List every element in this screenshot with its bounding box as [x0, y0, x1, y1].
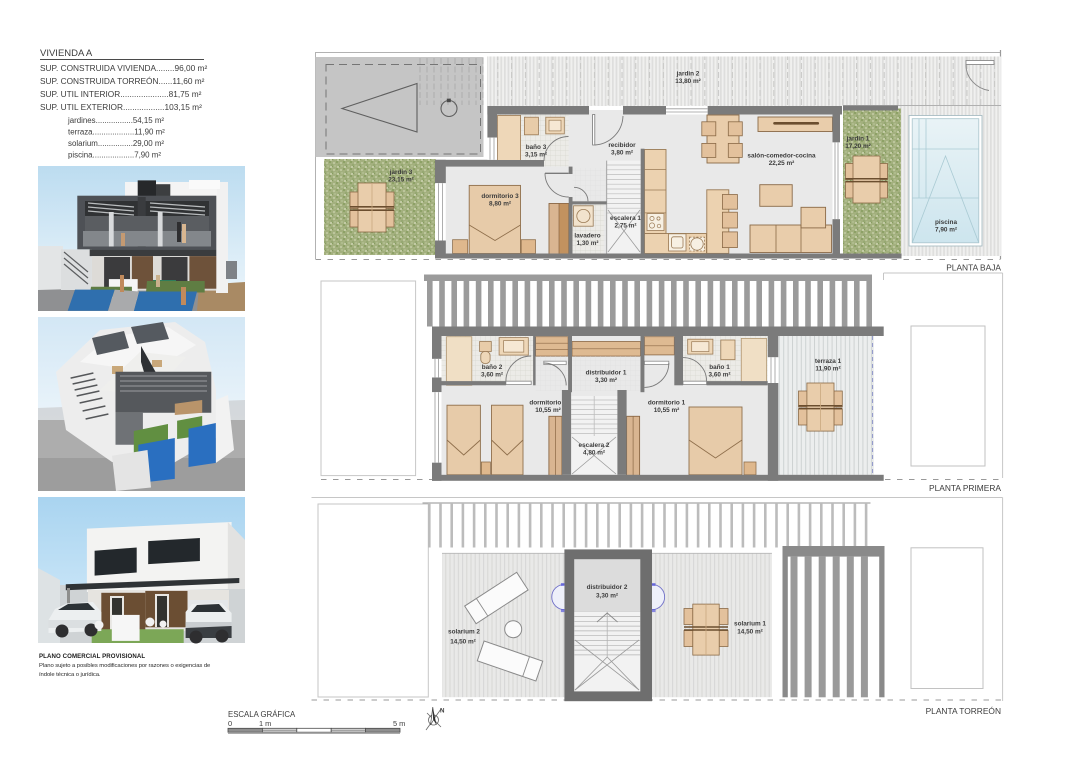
svg-text:Plano sujeto a posibles modifi: Plano sujeto a posibles modificaciones p…	[39, 663, 211, 669]
svg-text:0: 0	[228, 719, 232, 728]
svg-text:8,80 m²: 8,80 m²	[489, 201, 511, 208]
svg-text:dormitorio 2: dormitorio 2	[529, 400, 567, 407]
svg-text:2,75 m²: 2,75 m²	[614, 223, 636, 230]
svg-text:SUP. UTIL INTERIOR............: SUP. UTIL INTERIOR.....................8…	[40, 89, 202, 99]
svg-text:distribuidor 2: distribuidor 2	[587, 584, 628, 591]
svg-text:11,90 m²: 11,90 m²	[815, 366, 840, 373]
svg-text:PLANTA TORREÓN: PLANTA TORREÓN	[926, 706, 1001, 716]
svg-text:13,80 m²: 13,80 m²	[675, 78, 701, 85]
svg-text:22,25 m²: 22,25 m²	[769, 160, 795, 167]
svg-text:jardines.................54,15: jardines.................54,15 m²	[67, 116, 164, 125]
svg-text:solarium 2: solarium 2	[448, 629, 480, 636]
svg-text:escalera 2: escalera 2	[579, 442, 610, 449]
svg-text:3,30 m²: 3,30 m²	[596, 593, 618, 600]
svg-text:SUP. CONSTRUIDA VIVIENDA......: SUP. CONSTRUIDA VIVIENDA........96,00 m²	[40, 63, 207, 73]
svg-text:PLANTA BAJA: PLANTA BAJA	[946, 263, 1001, 273]
svg-text:baño 3: baño 3	[526, 144, 547, 151]
svg-text:3,60 m²: 3,60 m²	[481, 372, 503, 379]
svg-text:1 m: 1 m	[259, 719, 271, 728]
svg-text:índole técnica o jurídica.: índole técnica o jurídica.	[39, 672, 101, 678]
svg-text:3,60 m²: 3,60 m²	[708, 372, 730, 379]
svg-text:solarium 1: solarium 1	[734, 621, 766, 628]
svg-text:dormitorio 3: dormitorio 3	[481, 193, 519, 200]
svg-text:5 m: 5 m	[393, 719, 405, 728]
svg-text:recibidor: recibidor	[608, 142, 636, 149]
svg-text:dormitorio 1: dormitorio 1	[648, 400, 686, 407]
svg-text:escalera 1: escalera 1	[610, 215, 641, 222]
svg-text:jardin 1: jardin 1	[846, 136, 870, 143]
svg-text:jardin 2: jardin 2	[676, 71, 700, 78]
svg-text:4,80 m²: 4,80 m²	[583, 450, 605, 457]
svg-text:baño 2: baño 2	[482, 364, 503, 371]
svg-text:distribuidor 1: distribuidor 1	[586, 370, 627, 377]
svg-text:lavadero: lavadero	[574, 233, 600, 240]
svg-text:3,30 m²: 3,30 m²	[595, 377, 617, 384]
svg-text:N: N	[440, 708, 445, 715]
svg-text:14,50 m²: 14,50 m²	[737, 629, 763, 636]
svg-text:PLANO COMERCIAL PROVISIONAL: PLANO COMERCIAL PROVISIONAL	[39, 653, 145, 660]
svg-text:3,80 m²: 3,80 m²	[611, 150, 633, 157]
svg-text:PLANTA PRIMERA: PLANTA PRIMERA	[929, 483, 1001, 493]
svg-text:SUP. UTIL EXTERIOR............: SUP. UTIL EXTERIOR..................103,…	[40, 102, 202, 112]
svg-text:ESCALA GRÁFICA: ESCALA GRÁFICA	[228, 710, 296, 719]
svg-text:14,50 m²: 14,50 m²	[450, 639, 476, 646]
svg-text:baño 1: baño 1	[709, 364, 730, 371]
svg-text:VIVIENDA A: VIVIENDA A	[40, 48, 93, 59]
svg-text:SUP. CONSTRUIDA TORREÓN......1: SUP. CONSTRUIDA TORREÓN......11,60 m²	[40, 76, 205, 86]
svg-text:salón-comedor-cocina: salón-comedor-cocina	[747, 153, 816, 160]
svg-text:terraza 1: terraza 1	[815, 358, 842, 365]
svg-text:7,90 m²: 7,90 m²	[935, 227, 957, 234]
svg-text:piscina: piscina	[935, 219, 957, 226]
svg-text:solarium................29,00: solarium................29,00 m²	[68, 139, 164, 148]
svg-text:terraza...................11,9: terraza...................11,90 m²	[68, 128, 165, 137]
svg-text:23,15 m²: 23,15 m²	[388, 177, 414, 184]
svg-text:17,20 m²: 17,20 m²	[845, 143, 871, 150]
svg-text:jardin 3: jardin 3	[389, 169, 413, 176]
svg-text:3,15 m²: 3,15 m²	[525, 152, 547, 159]
svg-text:10,55 m²: 10,55 m²	[654, 407, 680, 414]
svg-text:1,30 m²: 1,30 m²	[576, 240, 598, 247]
svg-text:piscina...................7,90: piscina...................7,90 m²	[68, 151, 161, 160]
svg-text:10,55 m²: 10,55 m²	[535, 407, 561, 414]
